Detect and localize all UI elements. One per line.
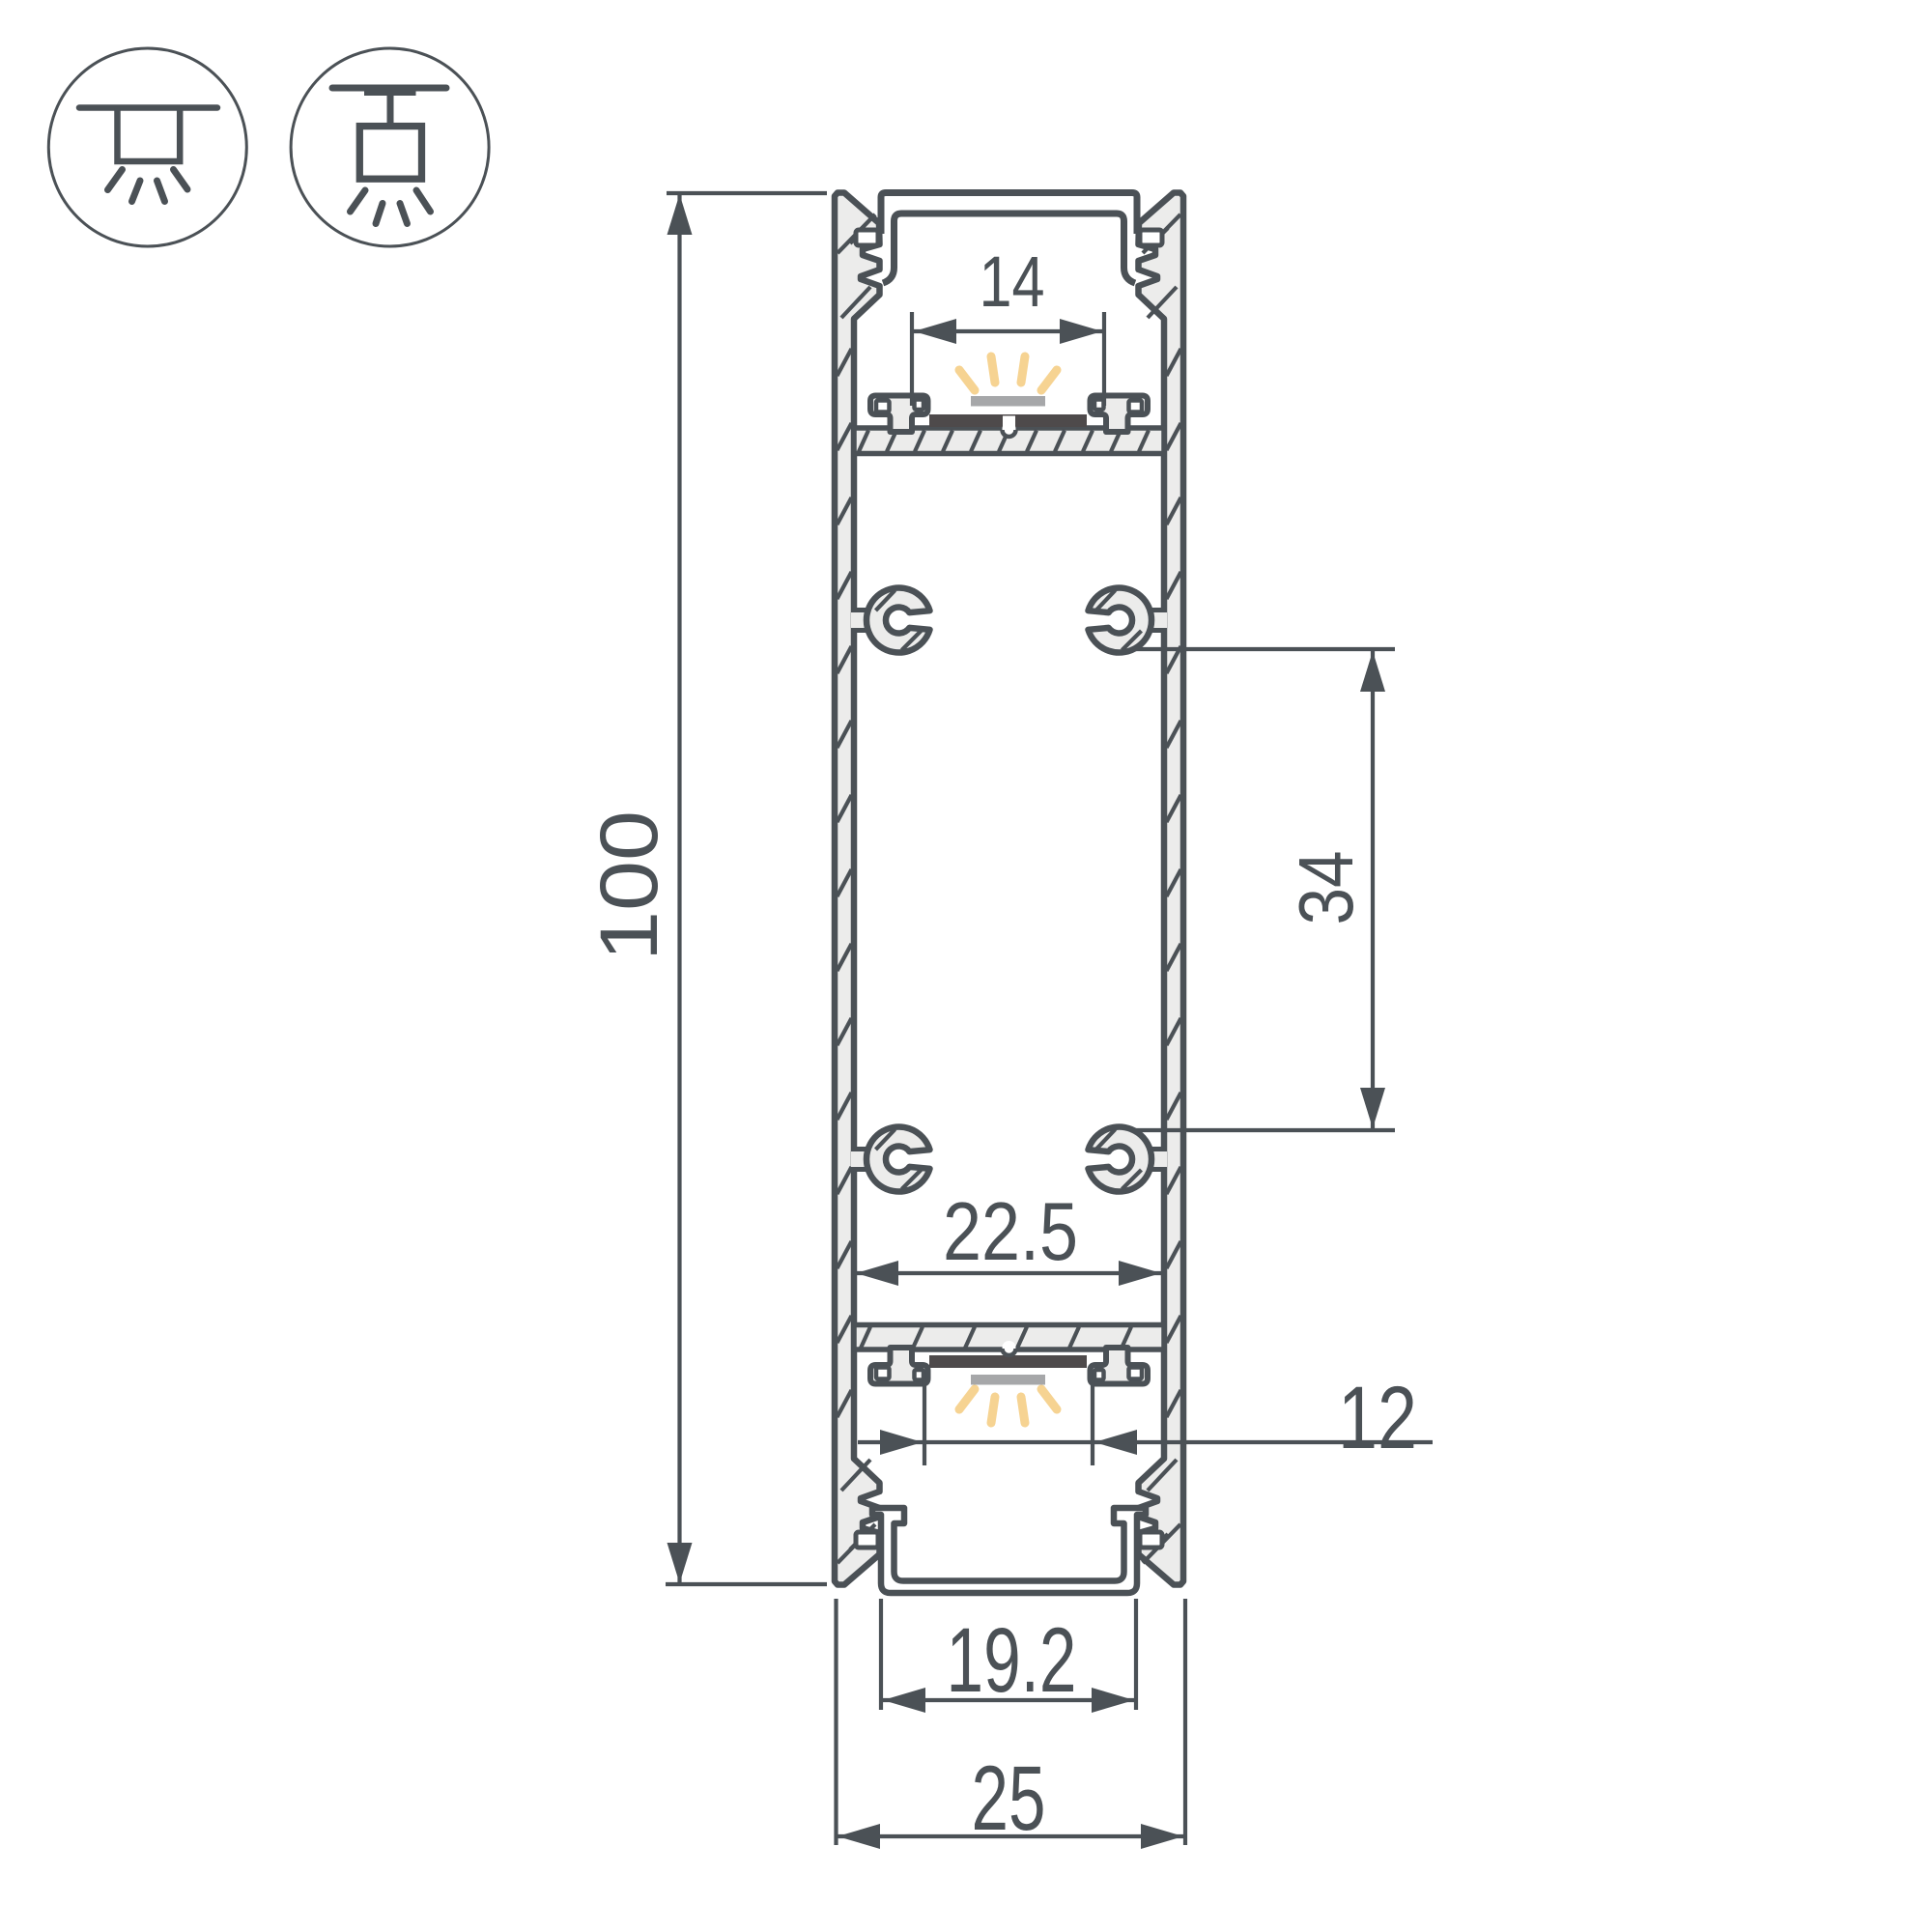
svg-text:12: 12 bbox=[1338, 1369, 1417, 1467]
svg-text:100: 100 bbox=[583, 810, 674, 961]
svg-text:22.5: 22.5 bbox=[943, 1186, 1078, 1278]
svg-text:19.2: 19.2 bbox=[947, 1609, 1077, 1712]
svg-text:34: 34 bbox=[1283, 851, 1369, 925]
svg-text:25: 25 bbox=[972, 1747, 1046, 1850]
svg-text:14: 14 bbox=[980, 241, 1045, 322]
